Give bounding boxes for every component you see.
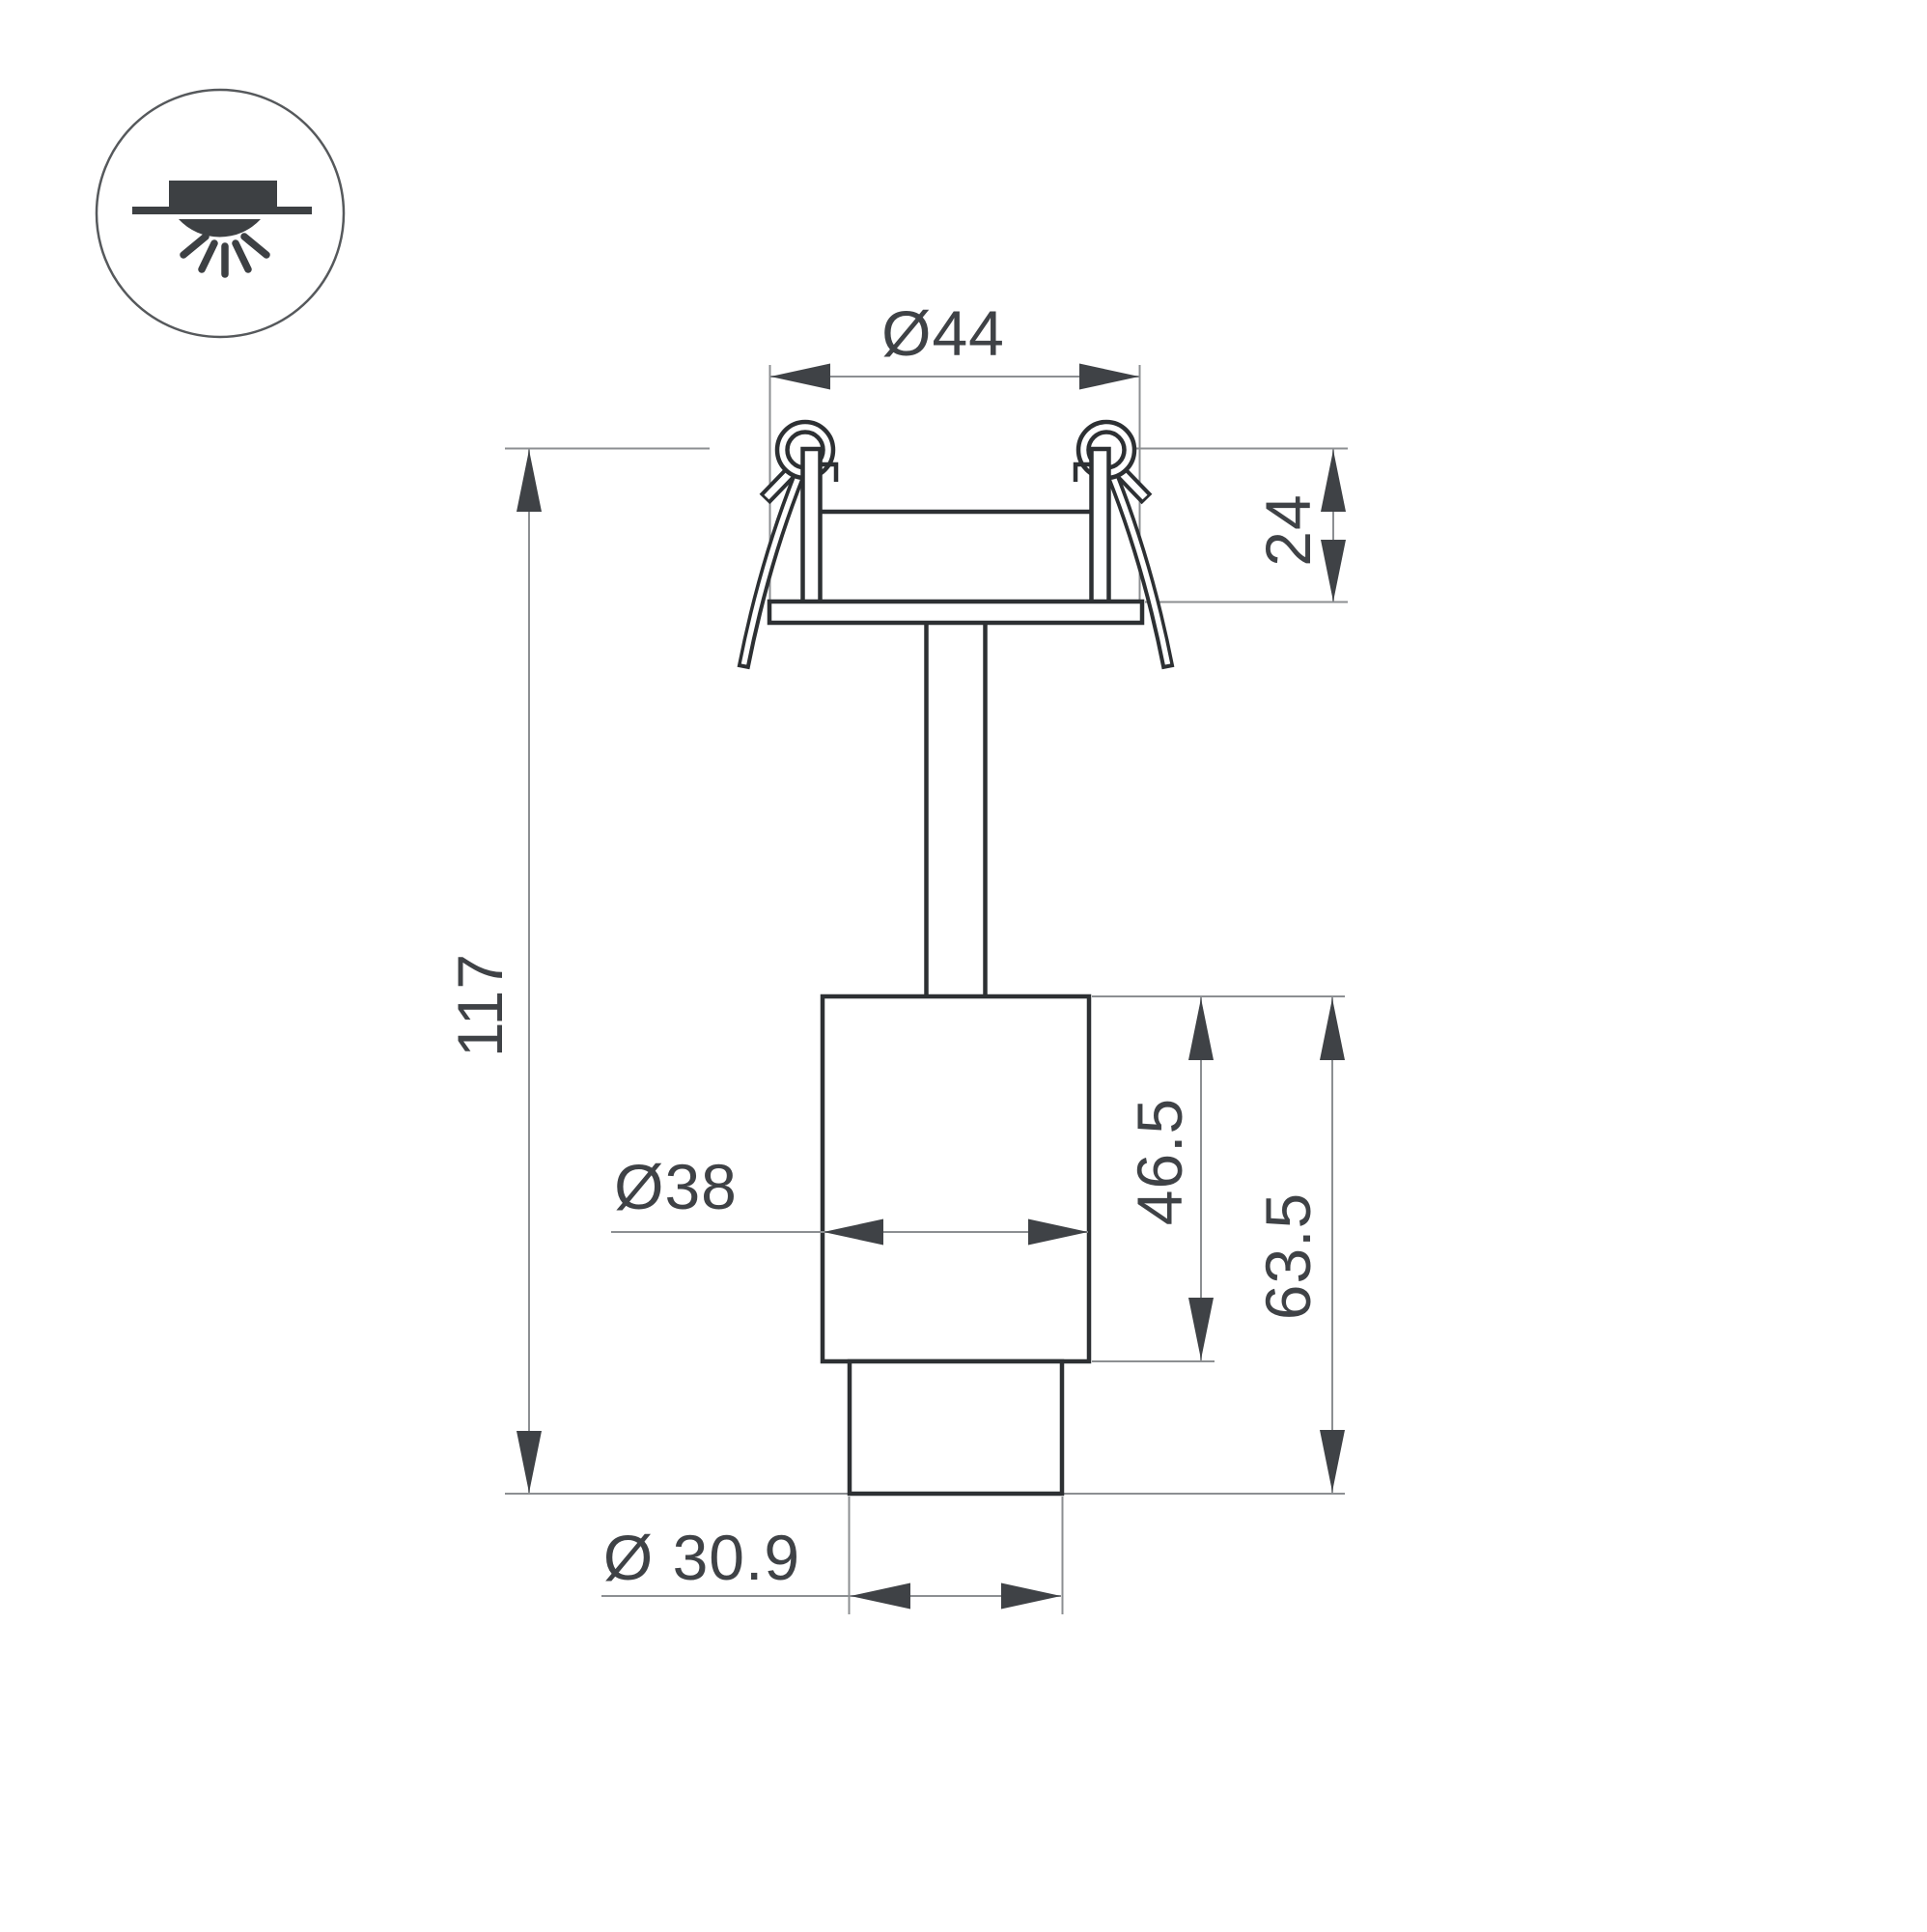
lamp-body bbox=[823, 996, 1089, 1361]
spring-clip-right bbox=[1113, 468, 1168, 668]
arrow-465-bottom bbox=[1188, 1298, 1214, 1359]
label-body-diameter: Ø38 bbox=[614, 1151, 738, 1222]
trim-flange bbox=[769, 602, 1142, 623]
arrow-117-bottom bbox=[517, 1431, 542, 1493]
arrow-d309-right bbox=[1001, 1583, 1061, 1610]
mounting-type-icon bbox=[97, 90, 344, 337]
cup-wall-left bbox=[803, 449, 821, 602]
label-recess-depth: 24 bbox=[1252, 493, 1324, 566]
icon-recessed-box bbox=[169, 181, 277, 209]
arrow-d44-left bbox=[770, 364, 830, 390]
lamp-lens bbox=[850, 1361, 1062, 1494]
cup-wall-right bbox=[1092, 449, 1109, 602]
label-lower-section-height: 63.5 bbox=[1252, 1192, 1324, 1320]
arrow-d309-left bbox=[851, 1583, 910, 1610]
arrow-d44-right bbox=[1079, 364, 1139, 390]
label-bottom-diameter: Ø 30.9 bbox=[603, 1522, 800, 1593]
icon-ceiling-bar bbox=[132, 207, 312, 214]
arrow-117-top bbox=[517, 450, 542, 512]
stem bbox=[927, 623, 986, 996]
arrow-24-top bbox=[1321, 450, 1346, 512]
label-top-diameter: Ø44 bbox=[881, 297, 1005, 369]
arrow-635-top bbox=[1320, 998, 1345, 1060]
spring-clip-left bbox=[743, 468, 798, 668]
housing-cup bbox=[803, 449, 1109, 602]
arrow-24-bottom bbox=[1321, 540, 1346, 602]
fixture-drawing bbox=[611, 422, 1168, 1494]
drawing-svg: Ø44 24 117 Ø38 46.5 63.5 Ø 30.9 bbox=[0, 0, 1927, 1927]
label-body-height: 46.5 bbox=[1124, 1098, 1195, 1225]
label-total-height: 117 bbox=[444, 953, 516, 1057]
arrow-465-top bbox=[1188, 998, 1214, 1060]
arrow-635-bottom bbox=[1320, 1430, 1345, 1492]
technical-drawing-canvas: Ø44 24 117 Ø38 46.5 63.5 Ø 30.9 bbox=[0, 0, 1927, 1927]
